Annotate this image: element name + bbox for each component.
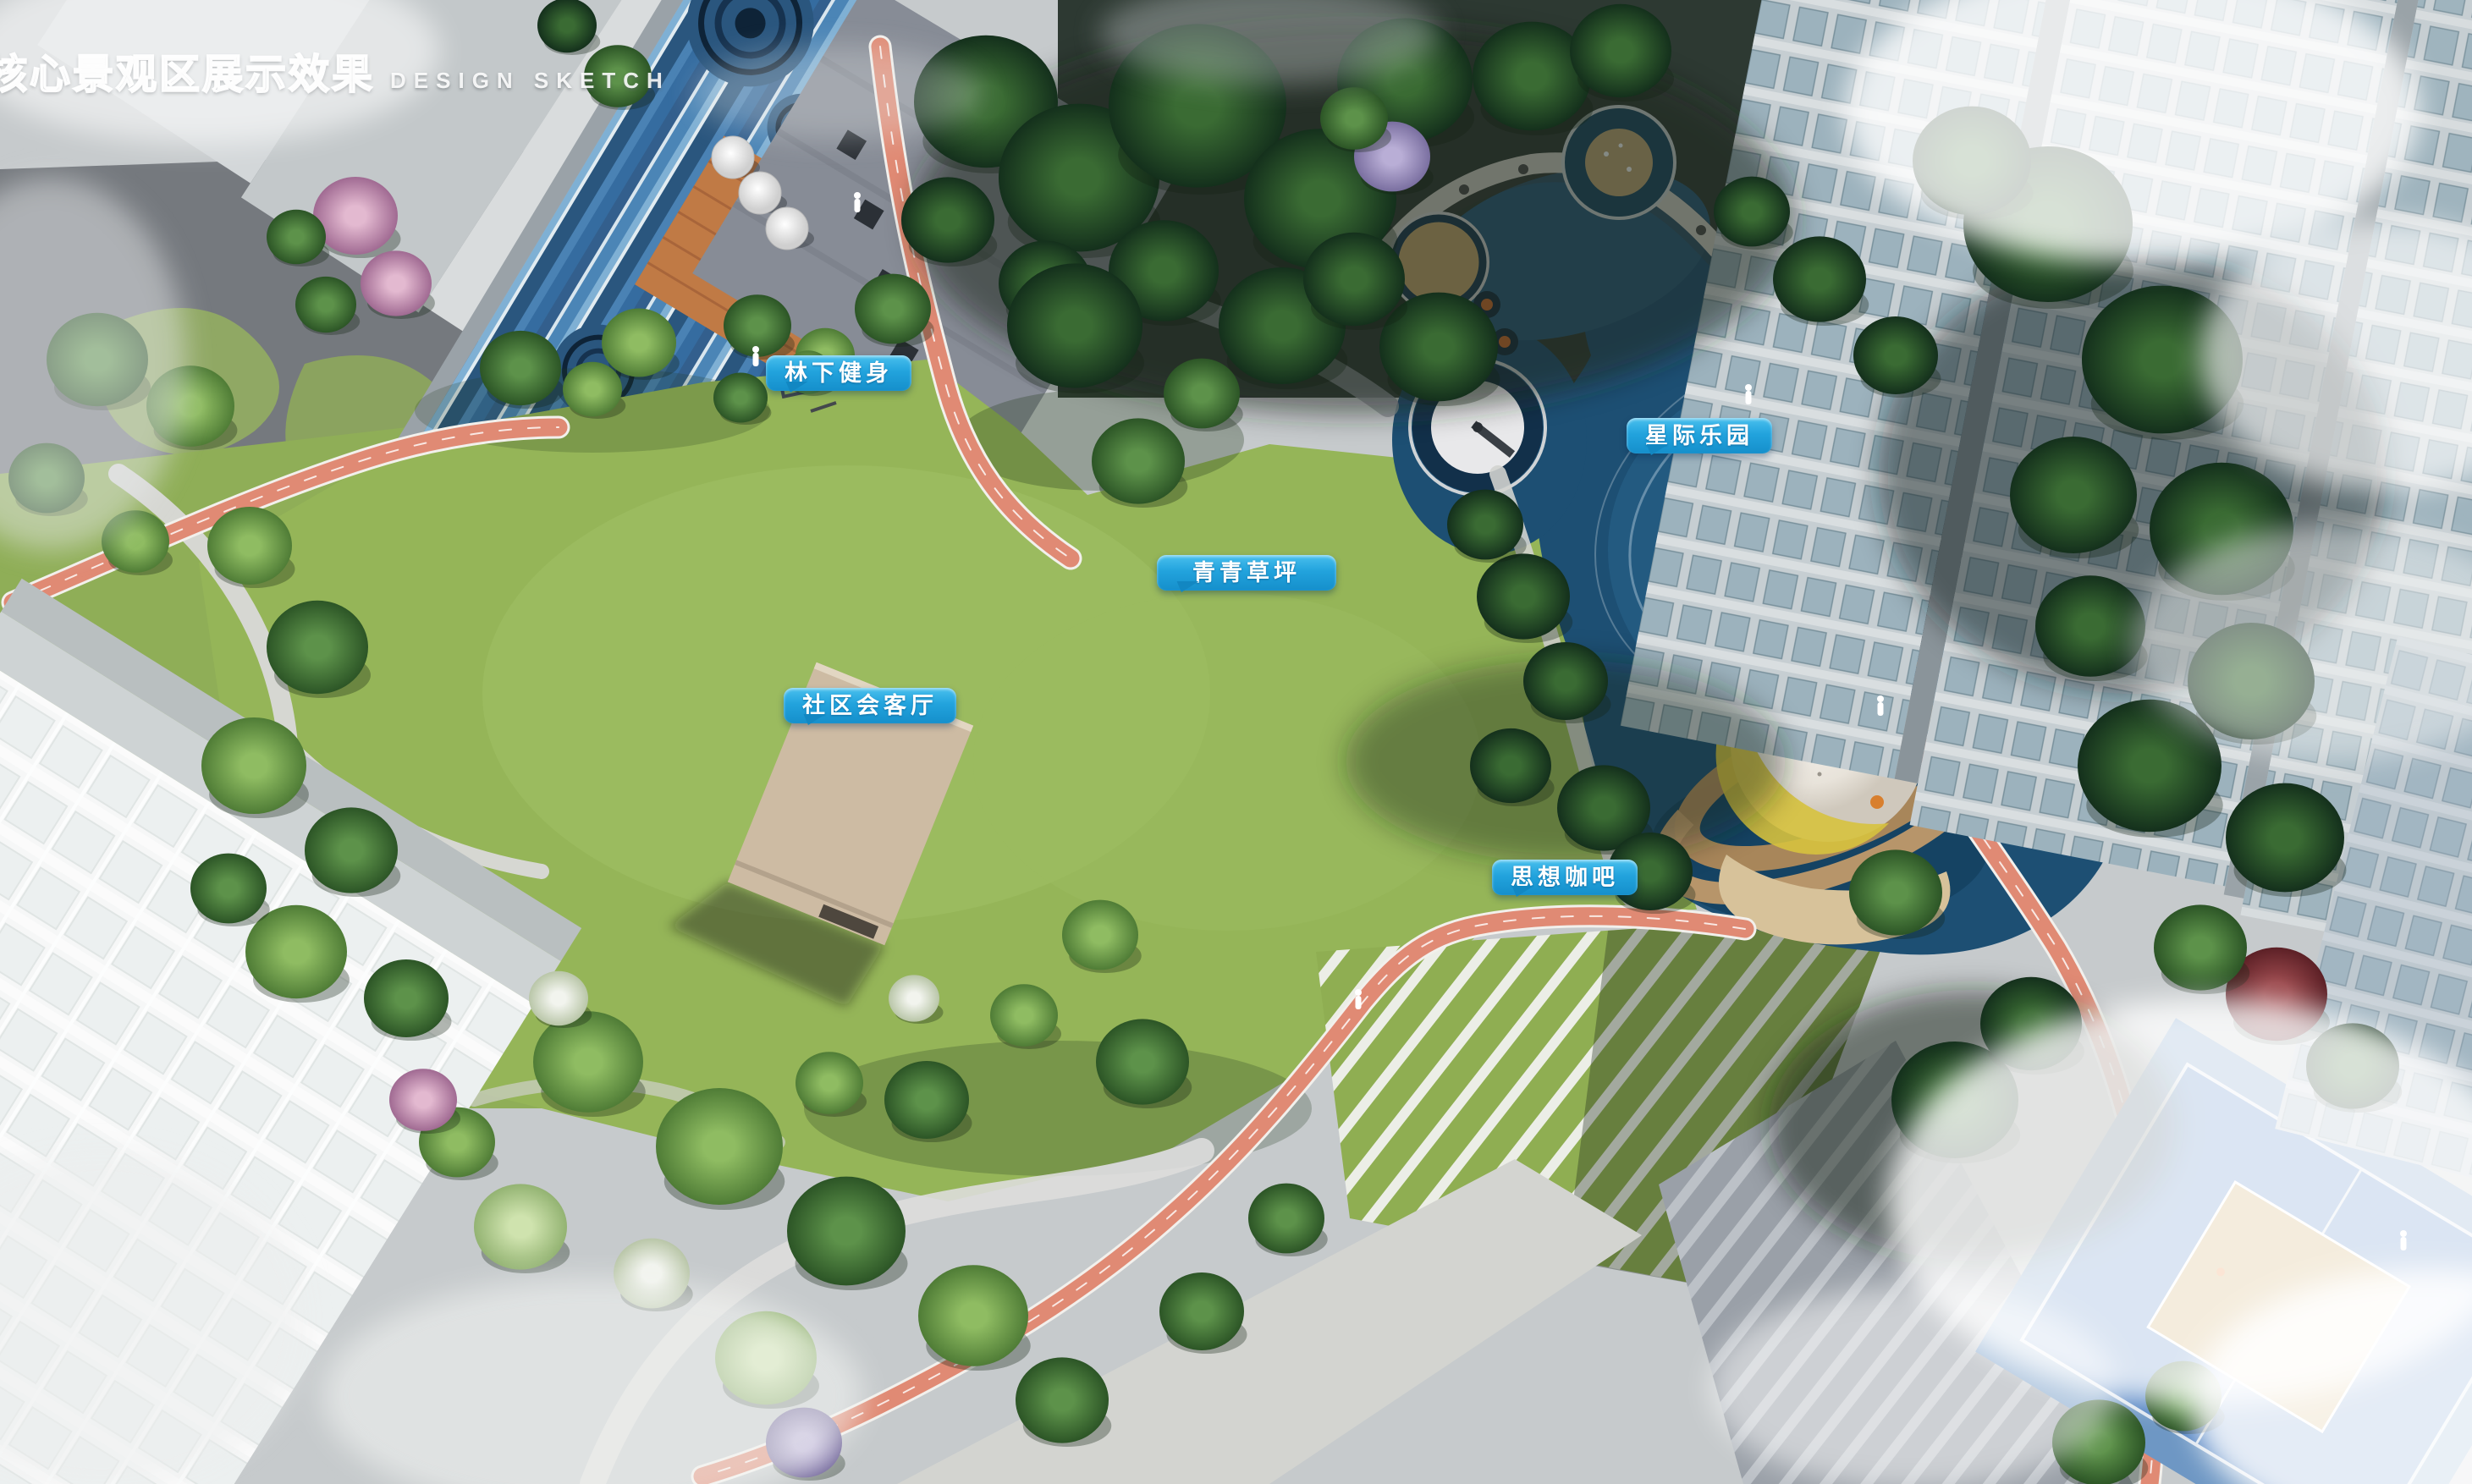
label-forest-fitness: 林下健身 xyxy=(766,355,911,391)
title-english: DESIGN SKETCH xyxy=(390,68,670,93)
page-title: 核心景观区展示效果DESIGN SKETCH xyxy=(0,41,670,100)
label-thought-cafe: 思想咖吧 xyxy=(1492,860,1638,895)
title-chinese: 核心景观区展示效果 xyxy=(0,52,375,97)
rendered-scene xyxy=(0,0,2472,1484)
label-community-lounge: 社区会客厅 xyxy=(784,688,956,723)
label-green-lawn: 青青草坪 xyxy=(1157,555,1336,591)
label-interstellar-park: 星际乐园 xyxy=(1627,418,1772,453)
landscape-design-rendering: 核心景观区展示效果DESIGN SKETCH 林下健身 青青草坪 社区会客厅 星… xyxy=(0,0,2472,1484)
